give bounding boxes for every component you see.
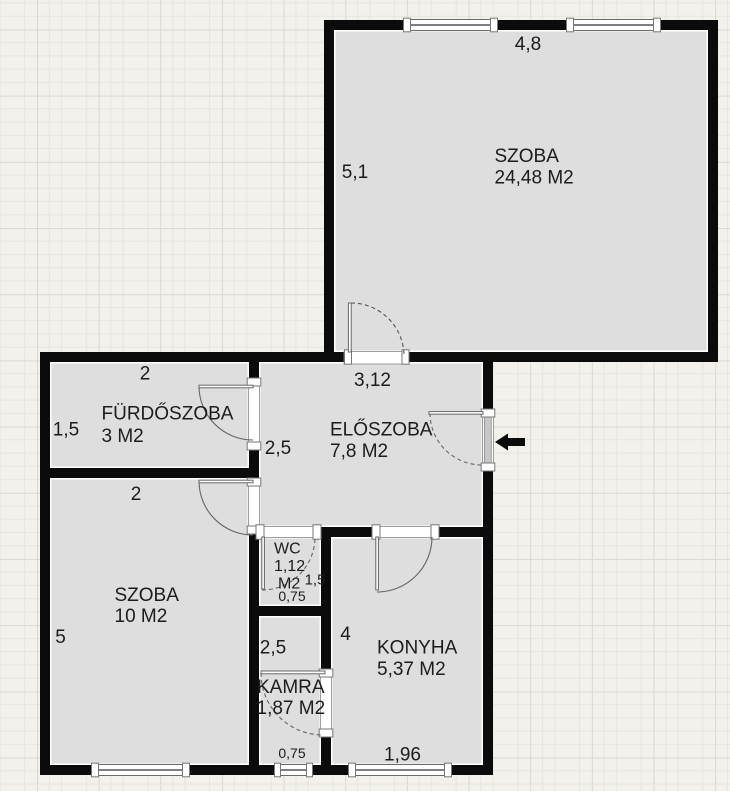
- svg-text:7,8 M2: 7,8 M2: [330, 441, 388, 462]
- svg-text:0,75: 0,75: [278, 745, 305, 761]
- svg-text:5,37 M2: 5,37 M2: [377, 659, 446, 680]
- svg-text:4,8: 4,8: [515, 34, 541, 55]
- svg-text:WC: WC: [274, 541, 301, 558]
- svg-text:2,5: 2,5: [265, 438, 291, 459]
- svg-text:3,12: 3,12: [354, 370, 391, 391]
- svg-text:1,96: 1,96: [384, 745, 421, 766]
- svg-text:1,5: 1,5: [53, 420, 79, 441]
- svg-text:5: 5: [55, 627, 66, 648]
- svg-text:1,87 M2: 1,87 M2: [257, 698, 326, 719]
- svg-text:SZOBA: SZOBA: [115, 585, 180, 606]
- svg-text:24,48 M2: 24,48 M2: [495, 168, 574, 189]
- svg-text:2,5: 2,5: [260, 638, 286, 659]
- svg-text:4: 4: [340, 624, 351, 645]
- svg-text:0,75: 0,75: [278, 588, 305, 604]
- svg-text:1,12: 1,12: [274, 558, 305, 575]
- svg-text:KAMRA: KAMRA: [257, 677, 325, 698]
- svg-text:2: 2: [131, 484, 142, 505]
- svg-text:FÜRDŐSZOBA: FÜRDŐSZOBA: [102, 403, 234, 425]
- svg-text:1,5: 1,5: [305, 572, 326, 589]
- svg-text:2: 2: [140, 364, 151, 385]
- svg-text:ELŐSZOBA: ELŐSZOBA: [330, 419, 433, 441]
- svg-text:3 M2: 3 M2: [102, 426, 144, 447]
- svg-text:5,1: 5,1: [342, 162, 368, 183]
- svg-text:KONYHA: KONYHA: [377, 638, 458, 659]
- svg-text:SZOBA: SZOBA: [495, 146, 560, 167]
- svg-text:10 M2: 10 M2: [115, 606, 168, 627]
